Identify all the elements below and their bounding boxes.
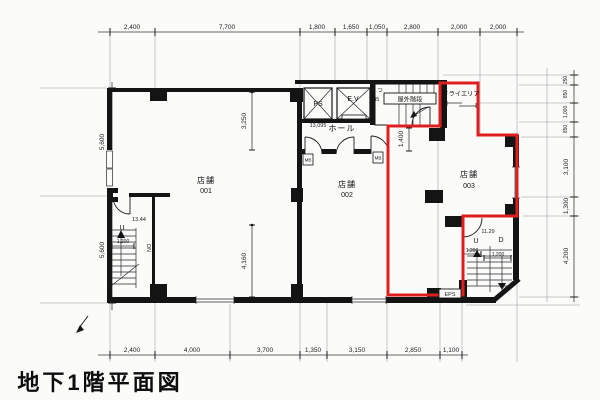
shop1-label: 店舗 — [197, 175, 215, 185]
basement-floorplan-svg: 2,400 7,700 1,800 1,650 1,050 2,800 2,00… — [0, 0, 600, 400]
meter-box-2-label: MB — [375, 156, 382, 161]
dim-bottom-6: 2,850 — [405, 347, 422, 354]
dim-bottom-2: 4,000 — [184, 347, 201, 354]
elevator-label: E.V — [347, 96, 359, 103]
dim-left-1: 5,600 — [99, 133, 106, 150]
dim-bottom-1: 2,400 — [124, 347, 141, 354]
outdoor-stair-area: 7.35 — [369, 97, 380, 103]
stair-right-width-a: 1,200 — [466, 248, 479, 254]
stair-left-dn: DN — [145, 244, 151, 252]
stair-right-level: 11.29 — [481, 229, 494, 235]
floorplan-drawing: 2,400 7,700 1,800 1,650 1,050 2,800 2,00… — [0, 0, 600, 400]
dim-bottom-3: 3,700 — [257, 347, 274, 354]
site-arrowhead — [76, 325, 84, 333]
dim-top-2: 7,700 — [219, 24, 236, 31]
dim-right-1: 250 — [563, 76, 569, 85]
stair-right-width-b: 1,200 — [492, 252, 505, 258]
dim-bottom-7: 1,100 — [443, 347, 460, 354]
dimension-labels: 2,400 7,700 1,800 1,650 1,050 2,800 2,00… — [99, 24, 570, 354]
site-arrow — [76, 316, 88, 333]
dim-top-1: 2,400 — [124, 24, 141, 31]
dim-shop1-upper: 3,250 — [241, 112, 248, 129]
shop3-number: 003 — [463, 183, 475, 190]
wall-stairroom-right — [152, 197, 155, 285]
staircase-left — [111, 228, 139, 288]
hall-label: ホール — [329, 124, 356, 133]
dim-shop1-lower: 4,160 — [241, 252, 248, 269]
wall-corner-diagonal — [493, 279, 519, 301]
sliding-door-dry-area — [447, 101, 476, 108]
hall-level: 13,095 — [310, 123, 327, 129]
wall-right-lower — [513, 216, 519, 280]
dim-bottom-4: 1,350 — [305, 347, 322, 354]
stair-right-arrows — [477, 254, 502, 286]
dim-top-4: 1,650 — [343, 24, 360, 31]
dim-top-8: 2,000 — [490, 24, 507, 31]
wall-core-top — [295, 80, 447, 84]
door-stair-003 — [463, 218, 482, 237]
dim-right-5: 3,100 — [563, 158, 570, 175]
ps-label: PS — [313, 101, 323, 108]
stair-left-level: 13.44 — [132, 217, 146, 223]
shop2-number: 002 — [341, 192, 353, 199]
dim-top-7: 2,000 — [451, 24, 468, 31]
dim-top-6: 2,800 — [404, 24, 421, 31]
shop3-label: 店舗 — [460, 169, 478, 179]
windows — [106, 101, 520, 304]
dim-bottom-5: 3,150 — [349, 347, 366, 354]
shop1-number: 001 — [200, 188, 212, 195]
dim-top-5: 1,050 — [369, 24, 386, 31]
stair-left-width: 1,200 — [117, 239, 130, 245]
drawing-title: 地下1階平面図 — [17, 370, 182, 395]
wall-bottom — [107, 297, 496, 303]
meter-box-1-label: MB — [305, 158, 312, 163]
shop2-label: 店舗 — [338, 179, 356, 189]
stair-left-breakline — [111, 264, 139, 286]
dim-right-7: 4,200 — [563, 247, 570, 264]
dim-top-3: 1,800 — [309, 24, 326, 31]
dim-right-6: 1,300 — [563, 197, 570, 214]
stair-right-down: D — [498, 237, 503, 244]
utility-boxes — [303, 152, 461, 298]
elevator-sill — [342, 115, 366, 119]
dim-left-2: 5,600 — [99, 241, 106, 258]
dim-shop3-entry: 1,400 — [398, 130, 405, 147]
outdoor-stair-label: 屋外階段 — [398, 96, 423, 104]
dim-right-2: 850 — [563, 90, 569, 99]
eps-label: EPS — [444, 292, 455, 298]
stair-left-up: U — [119, 225, 124, 232]
dry-area-label: ドライエリア — [442, 91, 479, 98]
wall-top — [107, 88, 301, 92]
dim-right-3: 1,000 — [563, 106, 569, 119]
dim-right-4: 850 — [563, 125, 569, 134]
tsu-note: つ — [377, 88, 383, 94]
wall-ev-stair — [370, 84, 375, 125]
stair-right-up: U — [473, 238, 478, 245]
